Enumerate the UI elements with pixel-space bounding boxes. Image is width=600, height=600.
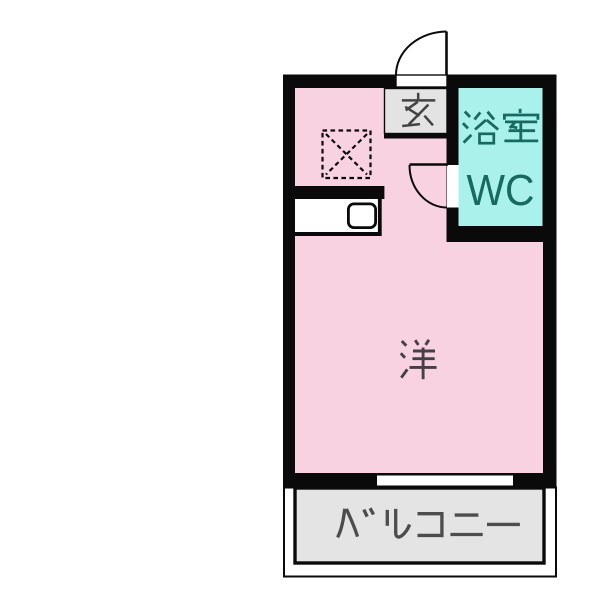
svg-text:WC: WC <box>467 166 535 215</box>
